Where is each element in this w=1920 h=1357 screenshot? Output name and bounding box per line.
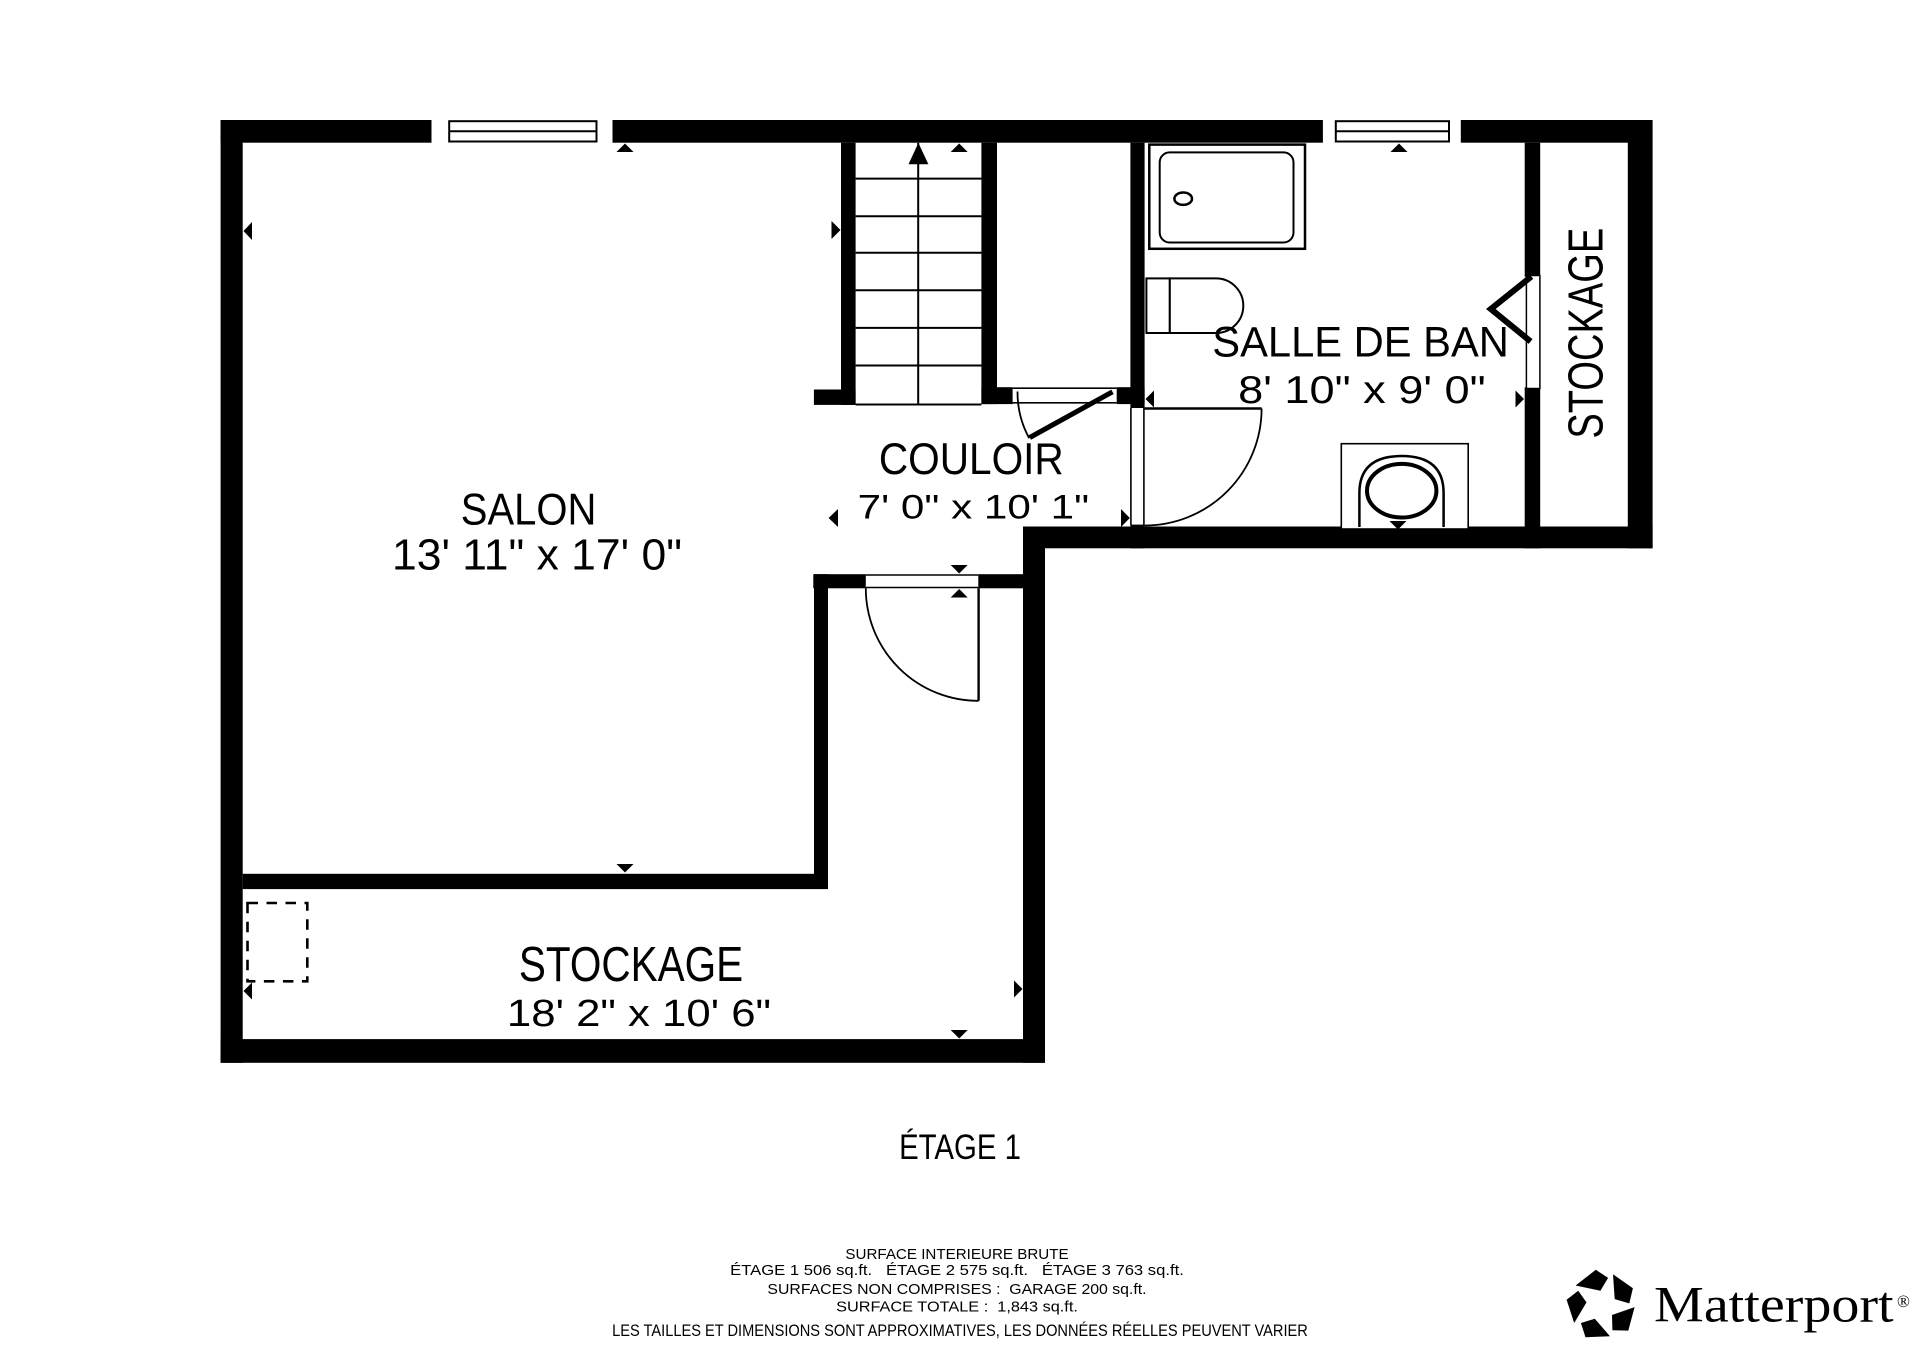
svg-text:SALON: SALON [461,486,597,535]
svg-text:SURFACE TOTALE : 1,843 sq.ft.: SURFACE TOTALE : 1,843 sq.ft. [836,1299,1078,1315]
svg-text:SURFACE INTERIEURE BRUTE: SURFACE INTERIEURE BRUTE [845,1247,1068,1263]
svg-text:STOCKAGE: STOCKAGE [1559,228,1614,439]
svg-text:Matterport: Matterport [1654,1277,1894,1333]
svg-text:SURFACES NON COMPRISES : GARA: SURFACES NON COMPRISES : GARAGE 200 sq.f… [767,1282,1146,1298]
svg-text:ÉTAGE 1: ÉTAGE 1 [899,1128,1021,1167]
svg-text:18' 2" x 10' 6": 18' 2" x 10' 6" [507,992,771,1034]
svg-text:SALLE DE BAN: SALLE DE BAN [1212,318,1509,365]
svg-text:COULOIR: COULOIR [879,435,1064,484]
svg-text:®: ® [1897,1292,1910,1311]
svg-text:8' 10" x 9' 0": 8' 10" x 9' 0" [1238,369,1486,412]
svg-text:13' 11" x 17' 0": 13' 11" x 17' 0" [392,531,682,579]
svg-text:7' 0" x 10' 1": 7' 0" x 10' 1" [858,489,1089,527]
svg-text:ÉTAGE 1 506 sq.ft. ÉTAGE 2 5: ÉTAGE 1 506 sq.ft. ÉTAGE 2 575 sq.ft. ÉT… [730,1262,1184,1279]
svg-text:STOCKAGE: STOCKAGE [519,938,743,992]
svg-text:LES TAILLES ET DIMENSIONS SONT: LES TAILLES ET DIMENSIONS SONT APPROXIMA… [612,1321,1308,1340]
